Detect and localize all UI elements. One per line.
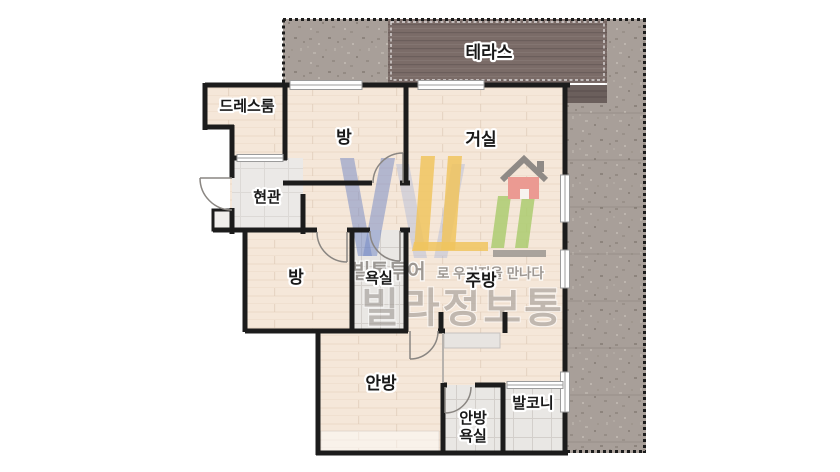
- logo-underline: [493, 250, 546, 257]
- label-kitchen: 주방: [465, 271, 497, 290]
- label-bedroom-left: 방: [288, 268, 304, 287]
- house-door: [520, 189, 529, 199]
- label-bedroom-top: 방: [336, 128, 352, 147]
- label-living-room: 거실: [465, 130, 496, 149]
- logo-l-foot: [412, 242, 488, 251]
- watermark-brand: 빌라정보통: [361, 285, 565, 331]
- stone-yard-top: [283, 19, 388, 83]
- terrace-step: [567, 85, 607, 103]
- floor-plan-image: 빌통투어 로 우리집을 만나다 빌라정보통 테라스 드레스룸 방 거실: [0, 0, 840, 472]
- label-master-bedroom: 안방: [365, 374, 397, 393]
- label-dressroom: 드레스룸: [219, 98, 274, 115]
- kitchen-counter: [444, 333, 500, 348]
- entrance-porch-step: [213, 210, 232, 230]
- label-master-bathroom-line1: 안방: [459, 409, 487, 427]
- label-master-bathroom-line2: 욕실: [459, 428, 487, 445]
- label-terrace: 테라스: [466, 43, 513, 62]
- entrance-door: [200, 178, 232, 210]
- master-bedroom-closet: [321, 431, 439, 451]
- floor-plan-svg: 빌통투어 로 우리집을 만나다 빌라정보통 테라스 드레스룸 방 거실: [0, 0, 840, 472]
- label-bathroom: 욕실: [365, 270, 393, 287]
- label-balcony: 발코니: [512, 395, 553, 412]
- label-entrance: 현관: [253, 189, 281, 206]
